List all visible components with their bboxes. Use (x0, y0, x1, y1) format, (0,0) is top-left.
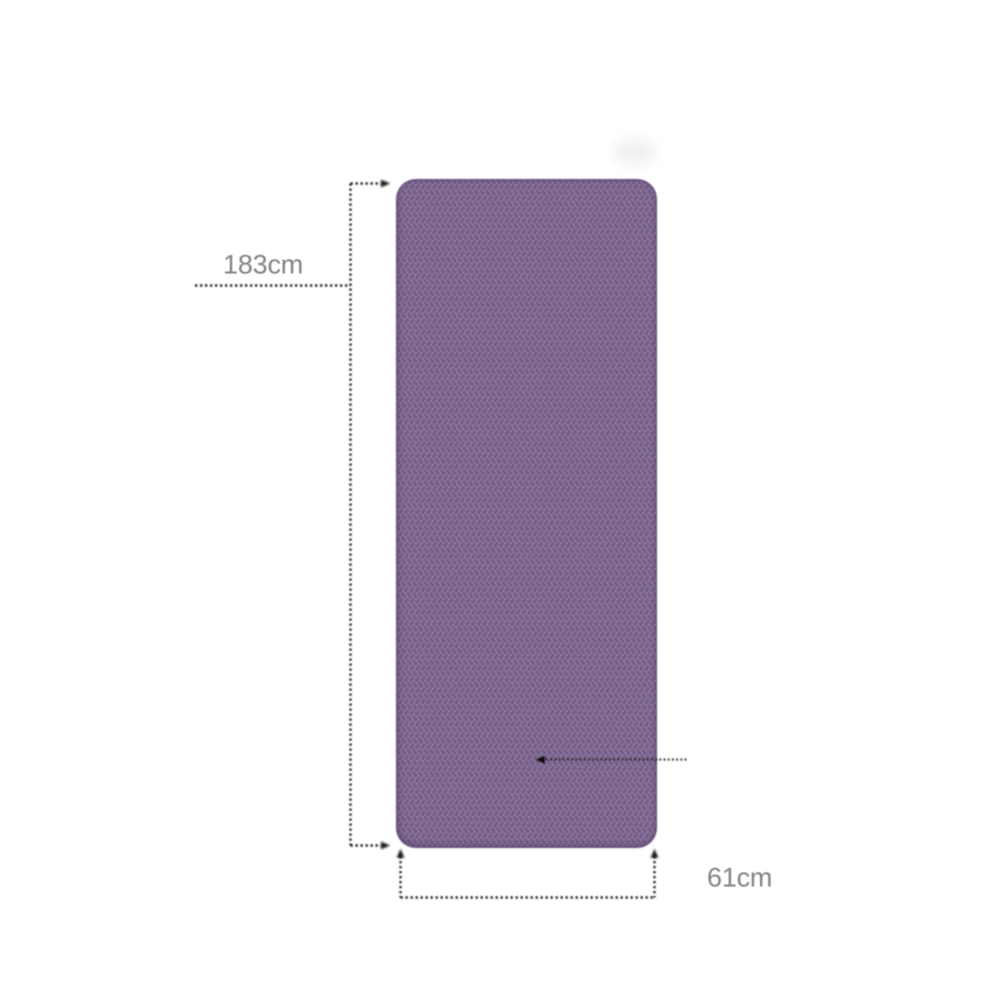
svg-text:183cm: 183cm (223, 250, 303, 280)
svg-text:61cm: 61cm (707, 863, 772, 893)
